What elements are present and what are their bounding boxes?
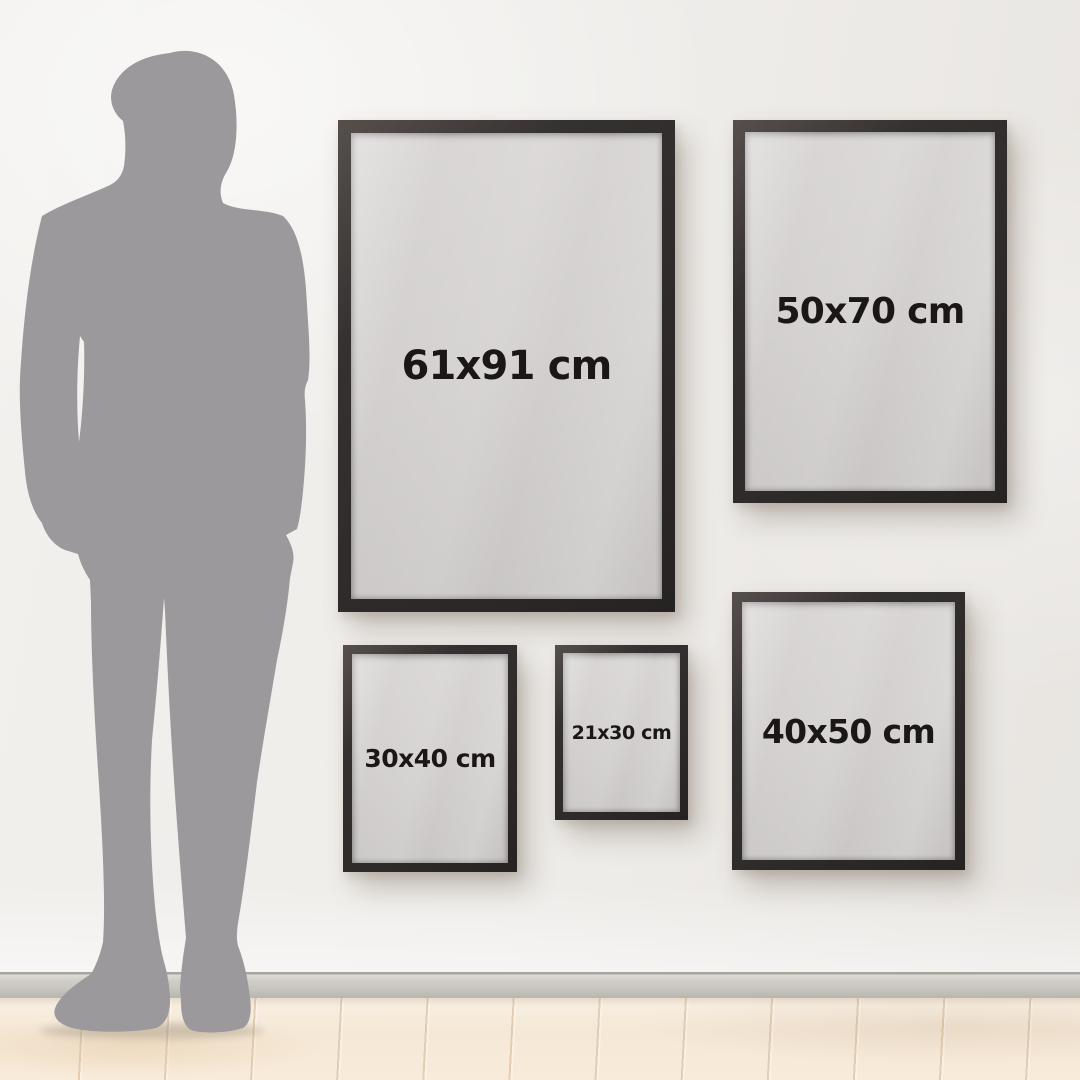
size-label-50x70: 50x70 cm bbox=[775, 291, 964, 332]
poster-61x91: 61x91 cm bbox=[351, 133, 662, 599]
frame-50x70: 50x70 cm bbox=[733, 120, 1007, 503]
frame-40x50: 40x50 cm bbox=[732, 592, 965, 870]
size-label-21x30: 21x30 cm bbox=[572, 722, 672, 744]
size-label-30x40: 30x40 cm bbox=[364, 744, 495, 773]
size-label-40x50: 40x50 cm bbox=[762, 712, 935, 751]
frame-21x30: 21x30 cm bbox=[555, 645, 688, 820]
poster-size-guide-scene: 61x91 cm 50x70 cm 30x40 cm 21x30 cm 40x5… bbox=[0, 0, 1080, 1080]
poster-50x70: 50x70 cm bbox=[745, 132, 995, 491]
man-silhouette bbox=[0, 0, 340, 1050]
man-silhouette-path bbox=[20, 51, 310, 1033]
poster-40x50: 40x50 cm bbox=[742, 602, 955, 860]
frame-30x40: 30x40 cm bbox=[343, 645, 517, 872]
poster-21x30: 21x30 cm bbox=[563, 653, 680, 812]
poster-30x40: 30x40 cm bbox=[352, 654, 508, 863]
frame-61x91: 61x91 cm bbox=[338, 120, 675, 612]
size-label-61x91: 61x91 cm bbox=[401, 343, 611, 389]
